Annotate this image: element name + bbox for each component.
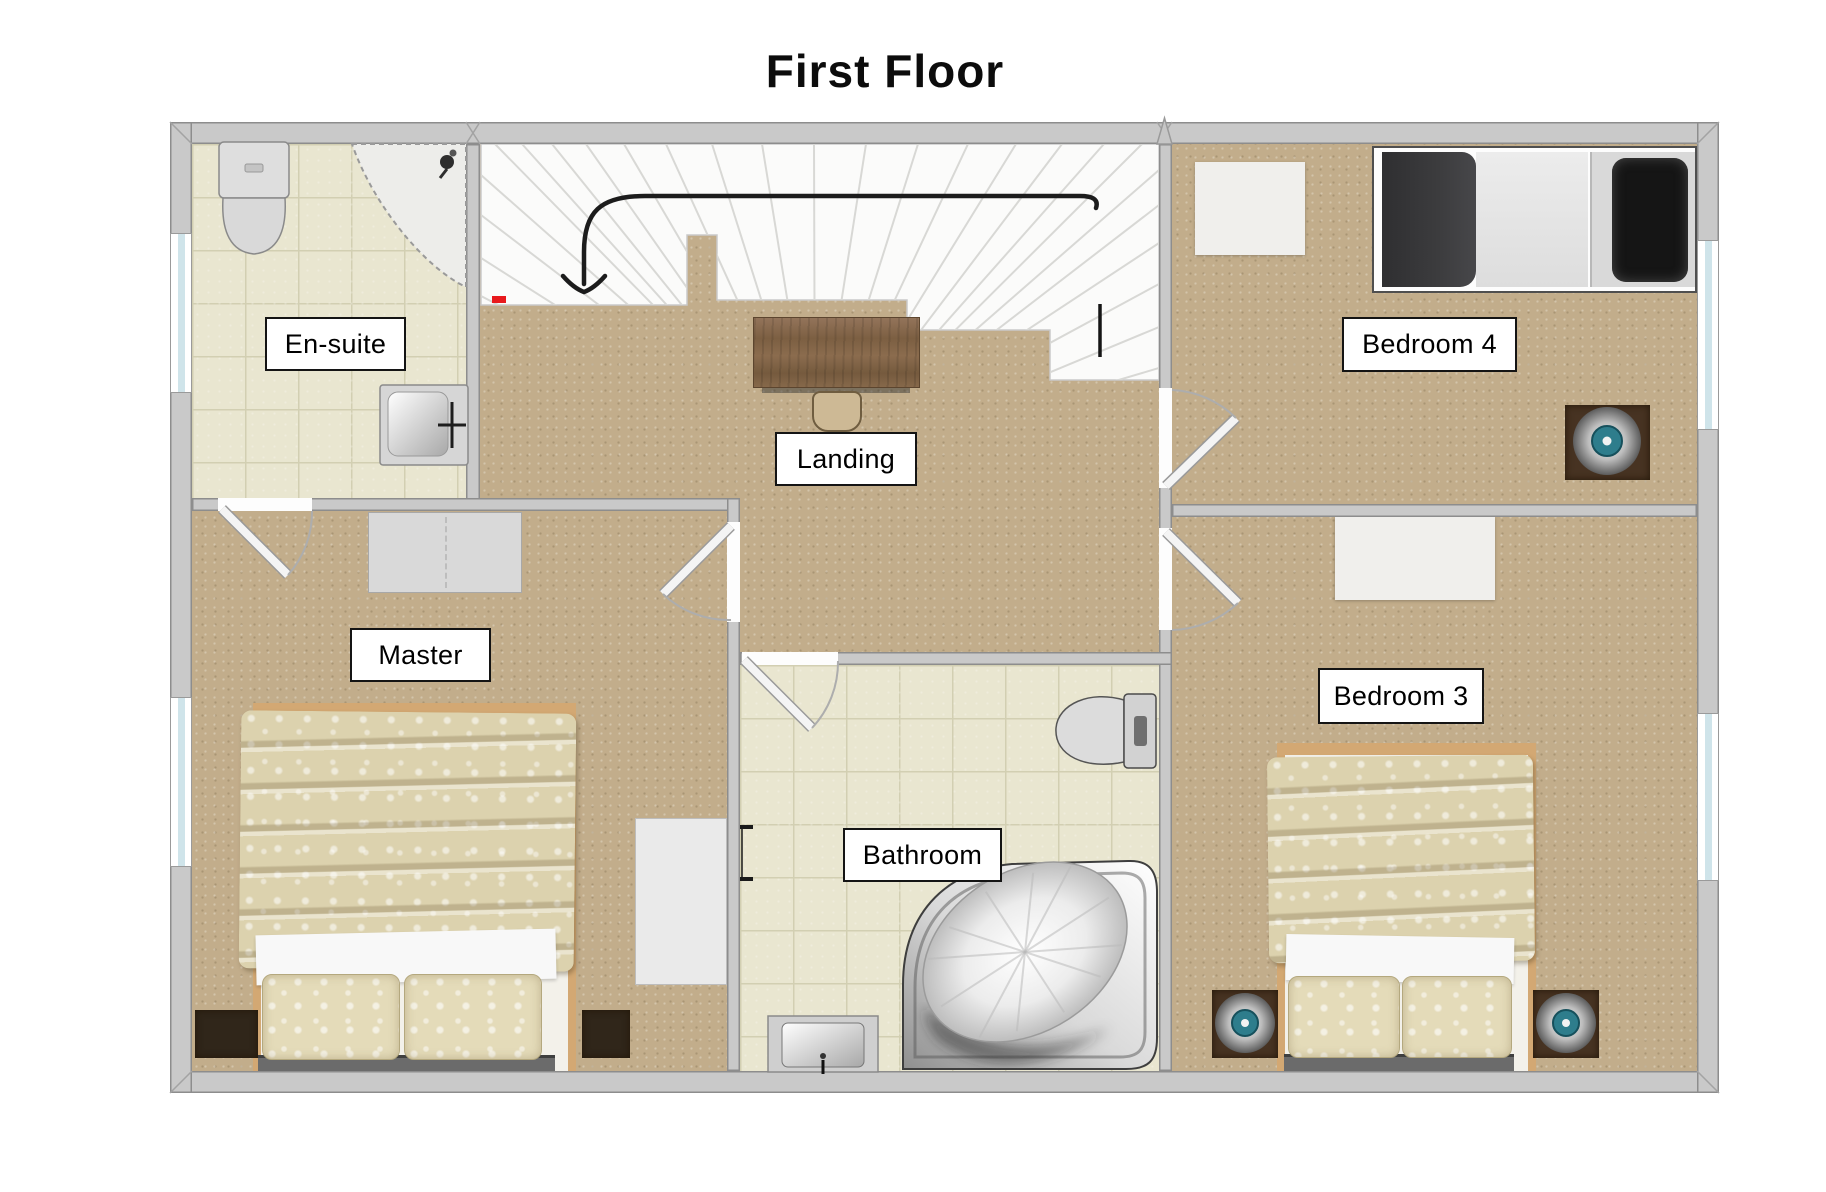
room-label-master: Master: [350, 628, 491, 682]
window-master: [170, 697, 192, 867]
wall-outer-top: [170, 122, 1719, 144]
doorway-master: [727, 522, 740, 622]
master-dresser: [368, 512, 522, 593]
window-bedroom4: [1697, 240, 1719, 430]
bedroom4-bed-pillow: [1612, 158, 1688, 282]
bedroom3-nightstand-left: [1212, 990, 1278, 1058]
bedroom4-bed-sheet: [1476, 152, 1588, 287]
window-ensuite: [170, 233, 192, 393]
room-label-bathroom: Bathroom: [843, 828, 1002, 882]
window-bedroom3: [1697, 713, 1719, 881]
bedroom3-bed: [1264, 740, 1534, 1075]
room-label-bedroom4: Bedroom 4: [1342, 317, 1517, 372]
landing-chair: [812, 391, 862, 432]
master-wardrobe: [635, 818, 727, 985]
master-nightstand-left: [195, 1010, 258, 1058]
bedroom4-nightstand: [1565, 405, 1650, 480]
doorway-bedroom3: [1159, 528, 1172, 630]
floor-plan-canvas: First Floor: [0, 0, 1826, 1192]
master-bed: [248, 700, 568, 1075]
bedroom3-bed-duvet: [1267, 755, 1535, 964]
doorway-bathroom: [742, 652, 838, 665]
bedroom3-bed-pillow-right: [1402, 976, 1512, 1058]
master-bed-pillow-right: [404, 974, 542, 1060]
room-label-landing: Landing: [775, 432, 917, 486]
bedroom4-bed-duvet: [1382, 152, 1476, 287]
master-nightstand-right: [582, 1010, 630, 1058]
wall-outer-bottom: [170, 1071, 1719, 1093]
master-bed-pillow-left: [262, 974, 400, 1060]
doorway-bedroom4: [1159, 388, 1172, 488]
desk-wood-grain: [754, 318, 919, 387]
wall-ensuite-right: [466, 144, 480, 511]
bedroom3-bed-pillow-left: [1288, 976, 1400, 1058]
landing-desk: [753, 317, 920, 388]
bedroom3-rug: [1335, 517, 1495, 600]
dresser-door-split: [445, 517, 447, 588]
room-label-ensuite: En-suite: [265, 317, 406, 371]
wall-bedroom4-bottom: [1172, 504, 1697, 517]
bedroom3-nightstand-right: [1533, 990, 1599, 1058]
room-label-bedroom3: Bedroom 3: [1318, 668, 1484, 724]
bedroom4-bed: [1372, 146, 1697, 293]
plan-title: First Floor: [635, 44, 1135, 98]
bedroom4-rug: [1195, 162, 1305, 255]
doorway-ensuite: [218, 498, 312, 511]
